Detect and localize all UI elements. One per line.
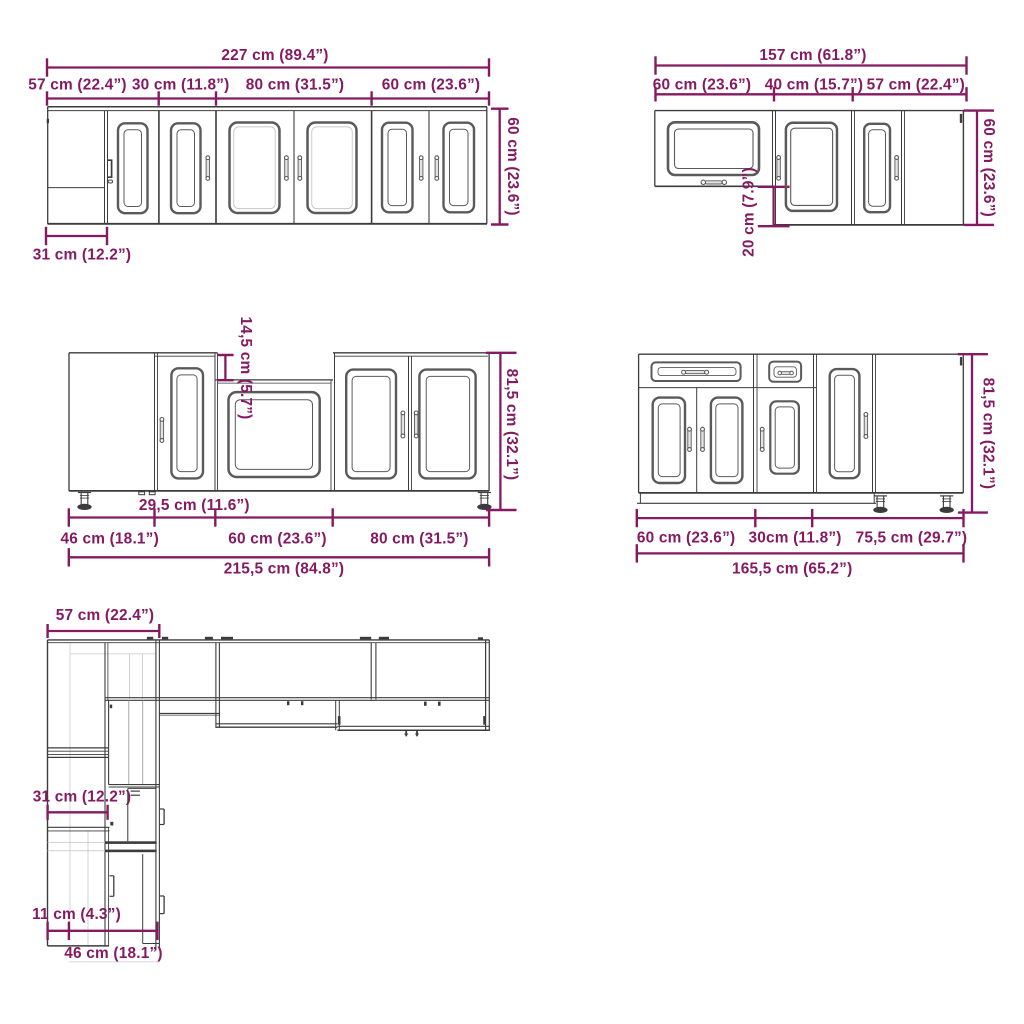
- svg-text:57 cm (22.4”): 57 cm (22.4”): [867, 76, 965, 93]
- svg-text:20 cm (7.9”): 20 cm (7.9”): [741, 167, 758, 257]
- svg-text:46 cm (18.1”): 46 cm (18.1”): [60, 531, 158, 548]
- svg-text:57 cm (22.4”): 57 cm (22.4”): [56, 607, 154, 624]
- svg-text:60 cm (23.6”): 60 cm (23.6”): [382, 76, 480, 93]
- svg-text:75,5 cm (29.7”): 75,5 cm (29.7”): [856, 530, 968, 547]
- svg-text:29,5 cm (11.6”): 29,5 cm (11.6”): [139, 497, 250, 514]
- svg-text:60 cm (23.6”): 60 cm (23.6”): [637, 530, 735, 547]
- svg-text:60 cm (23.6”): 60 cm (23.6”): [504, 117, 521, 215]
- svg-text:165,5 cm (65.2”): 165,5 cm (65.2”): [732, 560, 852, 577]
- svg-text:31 cm (12.2”): 31 cm (12.2”): [33, 247, 131, 264]
- svg-text:30 cm (11.8”): 30 cm (11.8”): [132, 76, 230, 93]
- svg-text:80 cm (31.5”): 80 cm (31.5”): [370, 531, 468, 548]
- svg-text:81,5 cm (32.1”): 81,5 cm (32.1”): [503, 369, 520, 481]
- svg-text:31 cm (12.2”): 31 cm (12.2”): [33, 788, 131, 805]
- svg-text:57 cm (22.4”): 57 cm (22.4”): [28, 76, 126, 93]
- svg-text:60 cm (23.6”): 60 cm (23.6”): [653, 76, 751, 93]
- svg-text:30cm (11.8”): 30cm (11.8”): [748, 530, 841, 547]
- svg-text:14,5 cm (5.7”): 14,5 cm (5.7”): [237, 317, 254, 420]
- svg-text:157 cm (61.8”): 157 cm (61.8”): [759, 47, 866, 64]
- svg-text:40 cm (15.7”): 40 cm (15.7”): [765, 76, 863, 93]
- svg-text:81,5 cm (32.1”): 81,5 cm (32.1”): [979, 378, 996, 490]
- svg-text:227 cm (89.4”): 227 cm (89.4”): [221, 47, 328, 64]
- svg-text:215,5 cm (84.8”): 215,5 cm (84.8”): [224, 560, 344, 577]
- svg-text:46 cm (18.1”): 46 cm (18.1”): [64, 945, 162, 962]
- svg-text:60 cm (23.6”): 60 cm (23.6”): [228, 531, 326, 548]
- svg-text:80 cm (31.5”): 80 cm (31.5”): [246, 76, 344, 93]
- svg-text:60 cm (23.6”): 60 cm (23.6”): [980, 118, 997, 216]
- svg-text:11 cm (4.3”): 11 cm (4.3”): [32, 906, 121, 923]
